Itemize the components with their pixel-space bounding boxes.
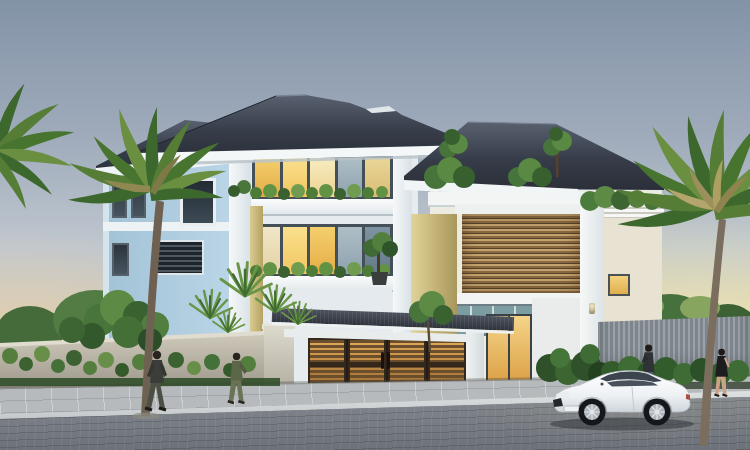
palm-tree-far-left bbox=[0, 83, 75, 216]
car-shadow bbox=[550, 418, 694, 431]
car-mirror bbox=[600, 382, 603, 385]
palm-fronds bbox=[68, 105, 230, 219]
pedestrian-woman-wall bbox=[228, 353, 247, 403]
car bbox=[544, 362, 700, 434]
car-taillight bbox=[686, 394, 690, 400]
car-wheel-front bbox=[579, 399, 606, 426]
pedestrian-woman-right bbox=[714, 349, 728, 396]
pedestrian-man-left bbox=[145, 351, 167, 410]
car-wheel-rear bbox=[644, 399, 671, 426]
scene bbox=[0, 0, 750, 450]
palm-fronds bbox=[615, 109, 750, 236]
car-plate bbox=[564, 406, 579, 412]
